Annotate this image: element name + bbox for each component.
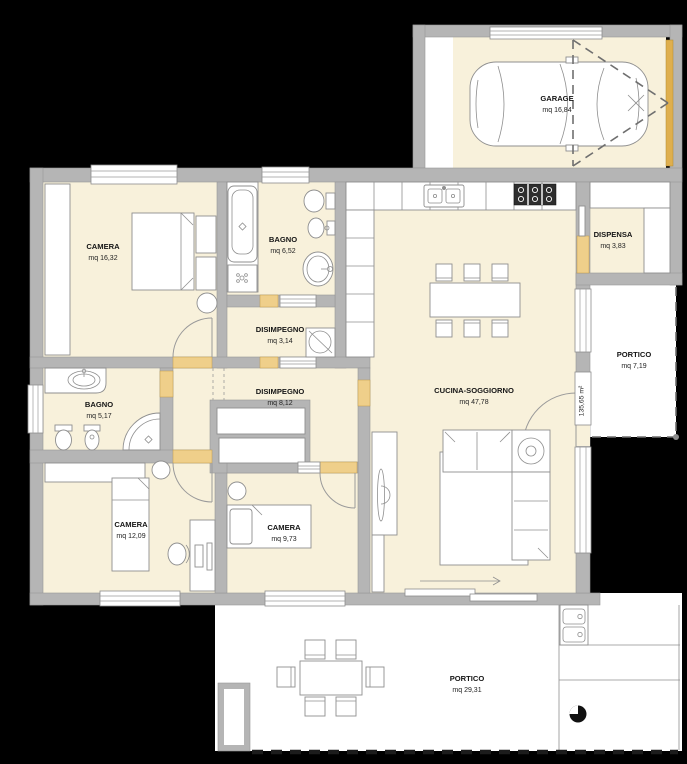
- room-label-disimpegno2: DISIMPEGNO: [256, 387, 305, 396]
- dispensa-shelf: [590, 182, 670, 208]
- shower-box-icon: [306, 328, 335, 357]
- stool-icon: [152, 461, 170, 479]
- kitchen-counter-side: [346, 210, 374, 357]
- room-area-camera3: mq 9,73: [271, 536, 296, 543]
- window-soggiorno-right: [575, 447, 591, 553]
- room-area-garage: mq 16,84: [542, 107, 571, 114]
- floor-plan-canvas: GARAGE mq 16,84 CAMERA mq 16,32 BAGNO mq…: [0, 0, 687, 764]
- toilet-icon: [304, 190, 335, 212]
- room-area-bagno2: mq 5,17: [86, 413, 111, 420]
- window-bagno1: [262, 167, 309, 183]
- dashed-corner-dot: [673, 434, 679, 440]
- plant-icon: [228, 265, 257, 292]
- bathtub-icon: [228, 186, 257, 262]
- room-label-portico-est: PORTICO: [617, 350, 652, 359]
- bidet-icon: [308, 218, 335, 238]
- room-label-camera3: CAMERA: [267, 523, 301, 532]
- room-label-camera2: CAMERA: [114, 520, 148, 529]
- room-label-garage: GARAGE: [540, 94, 573, 103]
- portico-pillar-core: [224, 689, 244, 745]
- car-icon: [470, 57, 648, 151]
- toilet-icon: [55, 425, 72, 450]
- wardrobe-icon: [217, 408, 305, 434]
- kitchen-sink-icon: [424, 185, 464, 207]
- door-camera3: [320, 462, 357, 473]
- sink-icon: [303, 252, 333, 286]
- dispensa-floor: [590, 208, 644, 273]
- pillow-icon: [230, 509, 252, 544]
- door-hall-cucina: [358, 380, 370, 406]
- sofa-icon: [440, 430, 550, 565]
- window-garage: [490, 27, 602, 39]
- room-label-disimpegno1: DISIMPEGNO: [256, 325, 305, 334]
- portico-est-floor: [590, 285, 676, 437]
- car-mirror: [566, 57, 578, 63]
- wardrobe-icon: [219, 438, 305, 463]
- pocket-door-threshold: [280, 357, 316, 368]
- door-bagno1: [260, 295, 278, 307]
- door-dispensa: [577, 236, 589, 273]
- dispensa-bottom-wall: [576, 273, 682, 285]
- room-label-portico-sud: PORTICO: [450, 674, 485, 683]
- desk-icon: [190, 520, 215, 591]
- dining-table-icon: [430, 264, 520, 337]
- door-dispensa-leaf: [579, 206, 585, 236]
- stool-icon: [197, 293, 217, 313]
- window-bagno2: [28, 385, 43, 433]
- window-camera2: [100, 591, 180, 606]
- pocket-door-threshold: [280, 295, 316, 307]
- camera1-bagno-wall: [217, 182, 227, 368]
- door-camera2: [173, 450, 212, 463]
- window-camera3: [265, 591, 345, 606]
- room-area-cucina: mq 47,78: [459, 399, 488, 406]
- room-label-bagno1: BAGNO: [269, 235, 297, 244]
- garage-left-wall: [413, 25, 425, 168]
- barbecue-icon: [560, 605, 588, 645]
- bidet-icon: [84, 425, 100, 450]
- floor-plan-drawing: GARAGE mq 16,84 CAMERA mq 16,32 BAGNO mq…: [0, 0, 687, 764]
- wood-oven-icon: [570, 706, 587, 723]
- vanity-sink-icon: [45, 368, 106, 393]
- window-camera1: [91, 165, 177, 184]
- bagno-cucina-wall: [335, 182, 346, 368]
- total-area-text: 135,65 m²: [579, 385, 586, 416]
- double-bed-icon: [132, 213, 216, 290]
- room-area-bagno1: mq 6,52: [270, 248, 295, 255]
- room-area-dispensa: mq 3,83: [600, 243, 625, 250]
- wardrobe-icon: [45, 184, 70, 355]
- room-label-camera1: CAMERA: [86, 242, 120, 251]
- garage-vestibule-floor: [425, 37, 453, 168]
- room-label-bagno2: BAGNO: [85, 400, 113, 409]
- door-disimpegno1: [260, 357, 278, 368]
- room-area-disimpegno1: mq 3,14: [267, 338, 292, 345]
- nightstand-icon: [196, 216, 216, 253]
- dispensa-shelf: [644, 208, 670, 273]
- entry-door-opening: [576, 424, 590, 446]
- nightstand-icon: [196, 257, 216, 290]
- portico-sud-floor-notch: [600, 593, 682, 605]
- room-label-dispensa: DISPENSA: [594, 230, 633, 239]
- room-area-portico-sud: mq 29,31: [452, 687, 481, 694]
- window-cucina-right: [575, 289, 591, 352]
- room-area-camera1: mq 16,32: [88, 255, 117, 262]
- room-area-portico-est: mq 7,19: [621, 363, 646, 370]
- door-camera1: [173, 357, 212, 368]
- pocket-door-threshold: [298, 462, 320, 473]
- total-area-label: 135,65 m²: [575, 372, 591, 425]
- stove-icon: [514, 184, 556, 205]
- stool-icon: [228, 482, 246, 500]
- car-mirror: [566, 145, 578, 151]
- room-label-cucina: CUCINA-SOGGIORNO: [434, 386, 514, 395]
- door-bagno2: [160, 371, 173, 397]
- room-area-camera2: mq 12,09: [116, 533, 145, 540]
- room-area-disimpegno2: mq 8,12: [267, 400, 292, 407]
